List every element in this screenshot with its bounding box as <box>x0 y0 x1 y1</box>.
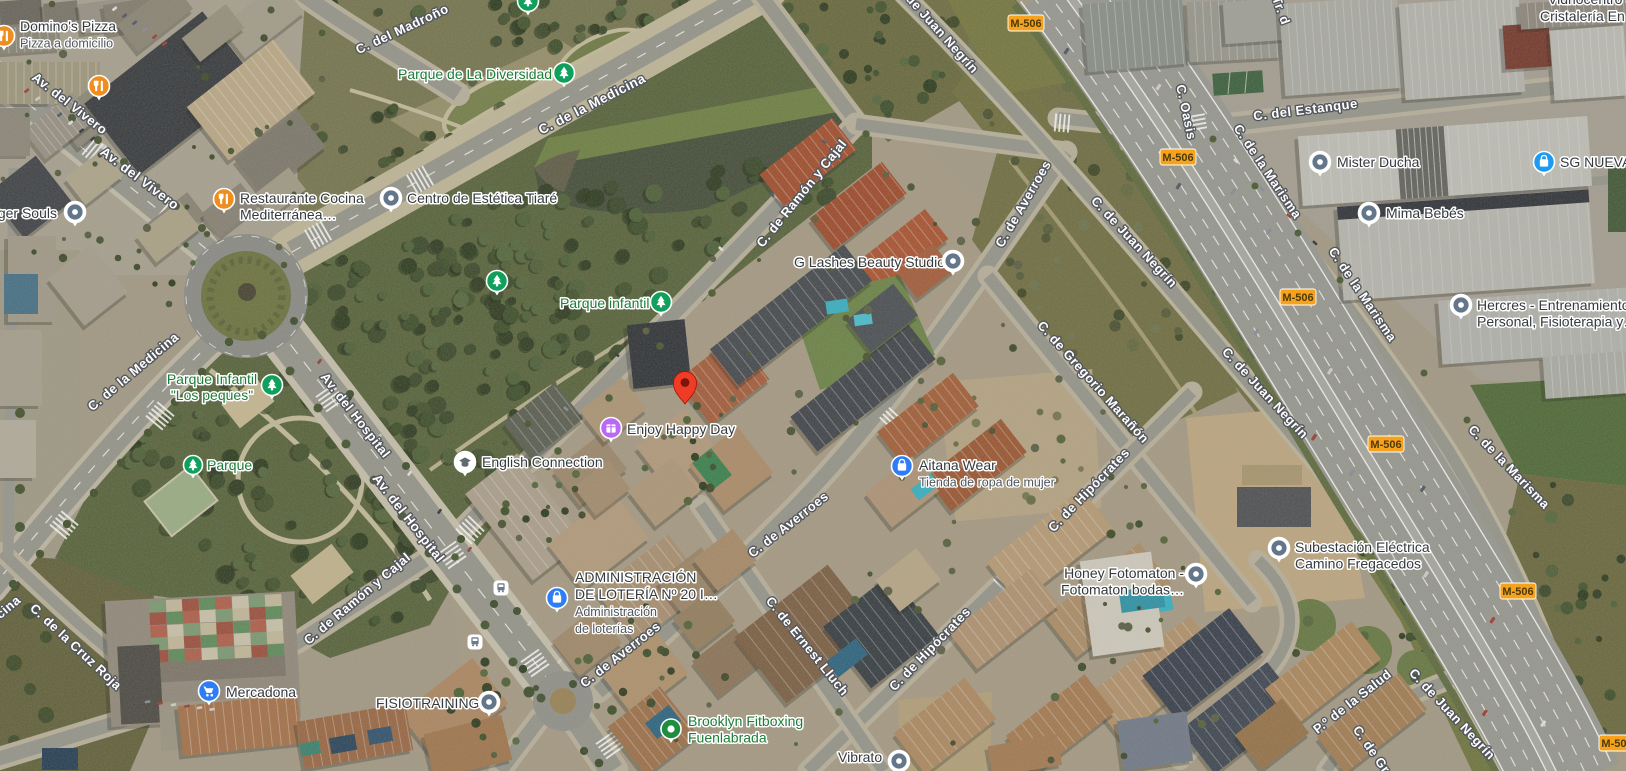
svg-text:Administración: Administración <box>575 605 657 619</box>
svg-text:Domino's Pizza: Domino's Pizza <box>20 18 116 34</box>
svg-text:SG NUEVA: SG NUEVA <box>1560 154 1626 170</box>
svg-text:M-506: M-506 <box>1370 439 1401 451</box>
svg-text:Parque Infantil: Parque Infantil <box>167 371 257 387</box>
svg-text:Mister Ducha: Mister Ducha <box>1337 154 1420 170</box>
svg-text:Brooklyn Fitboxing: Brooklyn Fitboxing <box>688 713 803 729</box>
svg-text:Hercres - Entrenamiento: Hercres - Entrenamiento <box>1477 297 1626 313</box>
svg-text:M-506: M-506 <box>1010 18 1041 30</box>
svg-text:Fuenlabrada: Fuenlabrada <box>688 730 767 746</box>
svg-text:Parque de La Diversidad: Parque de La Diversidad <box>398 66 552 82</box>
svg-text:Camino Fregacedos: Camino Fregacedos <box>1295 556 1421 572</box>
svg-text:Parque infantil: Parque infantil <box>560 295 650 311</box>
svg-text:Enjoy Happy Day: Enjoy Happy Day <box>627 421 735 437</box>
svg-text:Parque: Parque <box>207 457 252 473</box>
svg-text:Pizza a domicilio: Pizza a domicilio <box>20 37 113 51</box>
svg-text:de loterías: de loterías <box>575 622 633 636</box>
svg-text:M-506: M-506 <box>1601 738 1626 750</box>
svg-text:English Connection: English Connection <box>482 454 603 470</box>
svg-text:Aitana Wear: Aitana Wear <box>919 457 996 473</box>
svg-text:Centro de Estética Tiaré: Centro de Estética Tiaré <box>407 190 557 206</box>
svg-text:G Lashes Beauty Studio: G Lashes Beauty Studio <box>794 254 945 270</box>
svg-text:Cristalería En C…: Cristalería En C… <box>1540 8 1626 24</box>
svg-text:M-506: M-506 <box>1162 152 1193 164</box>
svg-text:Mima Bebés: Mima Bebés <box>1386 205 1464 221</box>
svg-text:Personal, Fisioterapia y…: Personal, Fisioterapia y… <box>1477 314 1626 330</box>
svg-text:ger Souls: ger Souls <box>0 205 57 221</box>
svg-text:Mediterránea…: Mediterránea… <box>240 207 337 223</box>
svg-text:Vidriocentro S: Vidriocentro S <box>1548 0 1626 7</box>
svg-text:Subestación Eléctrica: Subestación Eléctrica <box>1295 539 1430 555</box>
svg-text:M-506: M-506 <box>1502 586 1533 598</box>
svg-text:Vibrato: Vibrato <box>838 749 882 765</box>
svg-text:Mercadona: Mercadona <box>226 684 296 700</box>
svg-text:M-506: M-506 <box>1282 292 1313 304</box>
svg-text:ADMINISTRACIÓN: ADMINISTRACIÓN <box>575 569 696 585</box>
svg-text:Fotomaton bodas…: Fotomaton bodas… <box>1061 582 1184 598</box>
svg-text:FISIOTRAINING: FISIOTRAINING <box>376 695 479 711</box>
svg-text:Honey Fotomaton -: Honey Fotomaton - <box>1064 565 1184 581</box>
svg-text:DE LOTERÍA Nº 20 I…: DE LOTERÍA Nº 20 I… <box>575 586 718 602</box>
svg-text:Tienda de ropa de mujer: Tienda de ropa de mujer <box>919 476 1055 490</box>
svg-text:"Los peques": "Los peques" <box>171 387 253 403</box>
svg-text:Restaurante Cocina: Restaurante Cocina <box>240 190 364 206</box>
